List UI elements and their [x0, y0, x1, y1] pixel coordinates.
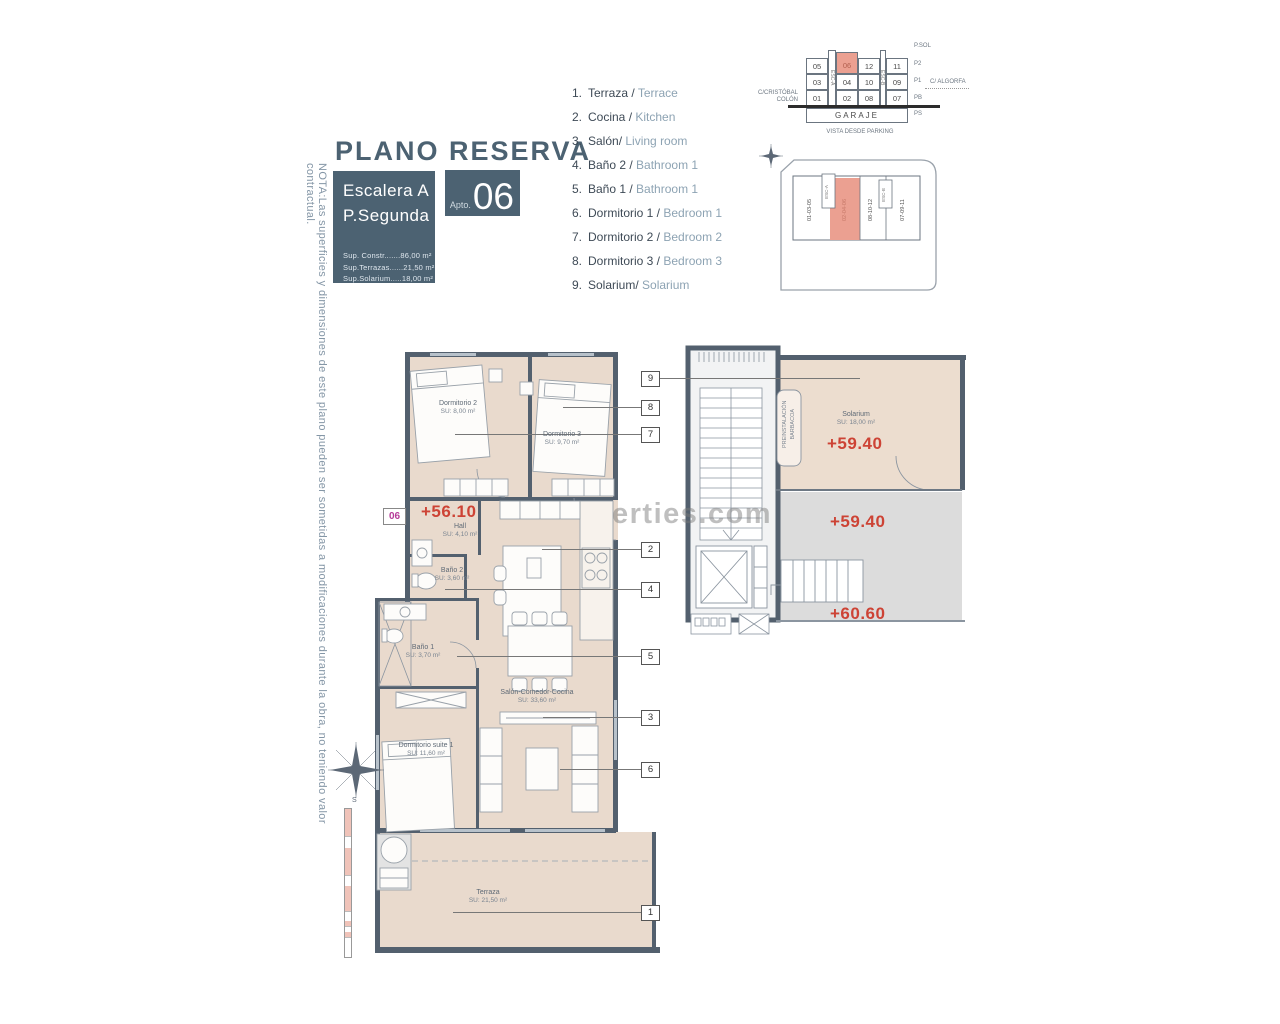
garage-cell: 11 [886, 58, 908, 74]
leader-line-2 [542, 549, 641, 550]
garage-cell: 02 [836, 90, 858, 106]
leader-line-8 [563, 407, 641, 408]
callout-6: 6 [641, 762, 660, 778]
callout-5: 5 [641, 649, 660, 665]
apto-number: 06 [473, 180, 514, 213]
stair-column-b: ESC-B [880, 50, 886, 106]
esc-b-label: ESC-B [881, 188, 886, 202]
apartment-number-box: Apto. 06 [445, 170, 520, 216]
floor-label-ps: PS [914, 111, 922, 118]
level-mark-roof: +59.40 [830, 512, 885, 532]
barbecue-label: PREINSTALACIÓN BARBACOA [781, 384, 798, 464]
garage-cell: 01 [806, 90, 828, 106]
garage-cell-highlight: 06 [836, 52, 858, 74]
legend-item: 6.Dormitorio 1 / Bedroom 1 [572, 206, 722, 230]
level-mark-solarium: +59.40 [827, 434, 882, 454]
surface-terrazas: Sup.Terrazas......21,50 m² [343, 262, 435, 273]
garage-cell: 09 [886, 74, 908, 90]
room-label-salon: Salón-Comedor-CocinaSU: 33,60 m² [490, 688, 584, 706]
terrace-utility [377, 834, 411, 890]
bed-dormitorio3 [533, 380, 611, 477]
room-label-dormitorio2: Dormitorio 2SU: 8,00 m² [425, 399, 491, 417]
title-block: Escalera A P.Segunda Sup. Constr.......8… [333, 171, 435, 283]
garage-cell: 04 [836, 74, 858, 90]
room-label-terraza: TerrazaSU: 21,50 m² [455, 888, 521, 906]
callout-2: 2 [641, 542, 660, 558]
leader-line-9 [659, 378, 860, 379]
stack-label-3: 08-10-12 [868, 199, 874, 221]
leader-line-3 [543, 717, 641, 718]
callout-1: 1 [641, 905, 660, 921]
legend-item: 9.Solarium/ Solarium [572, 278, 722, 302]
nightstand [489, 369, 502, 382]
garage-cell: 10 [858, 74, 880, 90]
compass-south-label: S [352, 797, 357, 804]
solarium-plan [685, 340, 975, 635]
room-label-solarium: SolariumSU: 18,00 m² [825, 410, 887, 428]
disclaimer-note: NOTA:Las superficies y dimensiones de es… [304, 163, 328, 863]
legend-item: 3.Salón/ Living room [572, 134, 722, 158]
room-label-bano1: Baño 1SU: 3,70 m² [396, 643, 450, 661]
garage-cell: 12 [858, 58, 880, 74]
stack-label-1: 01-03-05 [807, 199, 813, 221]
surface-constr: Sup. Constr.......86,00 m² [343, 250, 435, 261]
floor-label-p1: P1 [914, 78, 921, 85]
compass-icon-small [759, 144, 783, 168]
kitchen-island [494, 546, 561, 636]
apto-label: Apto. [450, 200, 471, 210]
callout-7: 7 [641, 427, 660, 443]
leader-line-4 [445, 589, 641, 590]
roof-stair [771, 560, 863, 602]
room-label-bano2: Baño 2SU: 3,60 m² [425, 566, 479, 584]
garage-cell: 08 [858, 90, 880, 106]
legend-item: 4.Baño 2 / Bathroom 1 [572, 158, 722, 182]
stack-label-4: 07-09-11 [900, 199, 906, 221]
stair-label: Escalera A [343, 179, 435, 204]
level-mark-main: +56.10 [421, 502, 476, 522]
garaje-cell: GARAJE [806, 108, 908, 123]
room-label-dormitorio3: Dormitorio 3SU: 9,70 m² [529, 430, 595, 448]
esc-a-label: ESC-A [824, 185, 829, 199]
legend-item: 5.Baño 1 / Bathroom 1 [572, 182, 722, 206]
room-legend: 1.Terraza / Terrace 2.Cocina / Kitchen 3… [572, 86, 722, 302]
compass-icon [328, 742, 384, 798]
callout-4: 4 [641, 582, 660, 598]
leader-line-6 [560, 769, 641, 770]
garage-cell: 03 [806, 74, 828, 90]
tv-sideboard [500, 712, 596, 724]
street-right-line [925, 88, 969, 89]
elevator [696, 546, 767, 608]
street-left-line2: COLÓN [754, 97, 798, 104]
garage-cell: 05 [806, 58, 828, 74]
unit-badge: 06 [383, 508, 406, 525]
legend-item: 2.Cocina / Kitchen [572, 110, 722, 134]
street-right-label: C/ ALGORFA [930, 79, 966, 86]
floor-label-psol: P.SOL [914, 43, 931, 50]
callout-9: 9 [641, 371, 660, 387]
garage-cell: 07 [886, 90, 908, 106]
leader-line-5 [457, 656, 641, 657]
stack-label-2: 02-04-06 [842, 199, 848, 221]
legend-item: 7.Dormitorio 2 / Bedroom 2 [572, 230, 722, 254]
dining-set [508, 612, 572, 691]
floor-label-pb: PB [914, 95, 922, 102]
level-mark-lower: +60.60 [830, 604, 885, 624]
room-label-suite: Dormitorio suite 1SU: 11,60 m² [391, 741, 461, 759]
scale-bar [344, 808, 352, 958]
page-title: PLANO RESERVA [335, 136, 591, 167]
core-bottom-rooms [691, 614, 769, 634]
suite-wardrobe [396, 692, 466, 708]
nightstand [520, 382, 533, 395]
legend-item: 1.Terraza / Terrace [572, 86, 722, 110]
stair-column-a: ESC-A [828, 50, 836, 106]
garage-caption: VISTA DESDE PARKING [820, 129, 900, 136]
site-plan: 01-03-05 02-04-06 08-10-12 07-09-11 ESC-… [755, 140, 975, 295]
floor-label: P.Segunda [343, 204, 435, 229]
floor-label-p2: P2 [914, 61, 921, 68]
callout-3: 3 [641, 710, 660, 726]
surface-solarium: Sup.Solarium.....18,00 m² [343, 273, 435, 284]
legend-item: 8.Dormitorio 3 / Bedroom 3 [572, 254, 722, 278]
watermark: erties.com [612, 498, 772, 531]
callout-8: 8 [641, 400, 660, 416]
room-label-hall: HallSU: 4,10 m² [430, 522, 490, 540]
leader-line-1 [453, 912, 641, 913]
